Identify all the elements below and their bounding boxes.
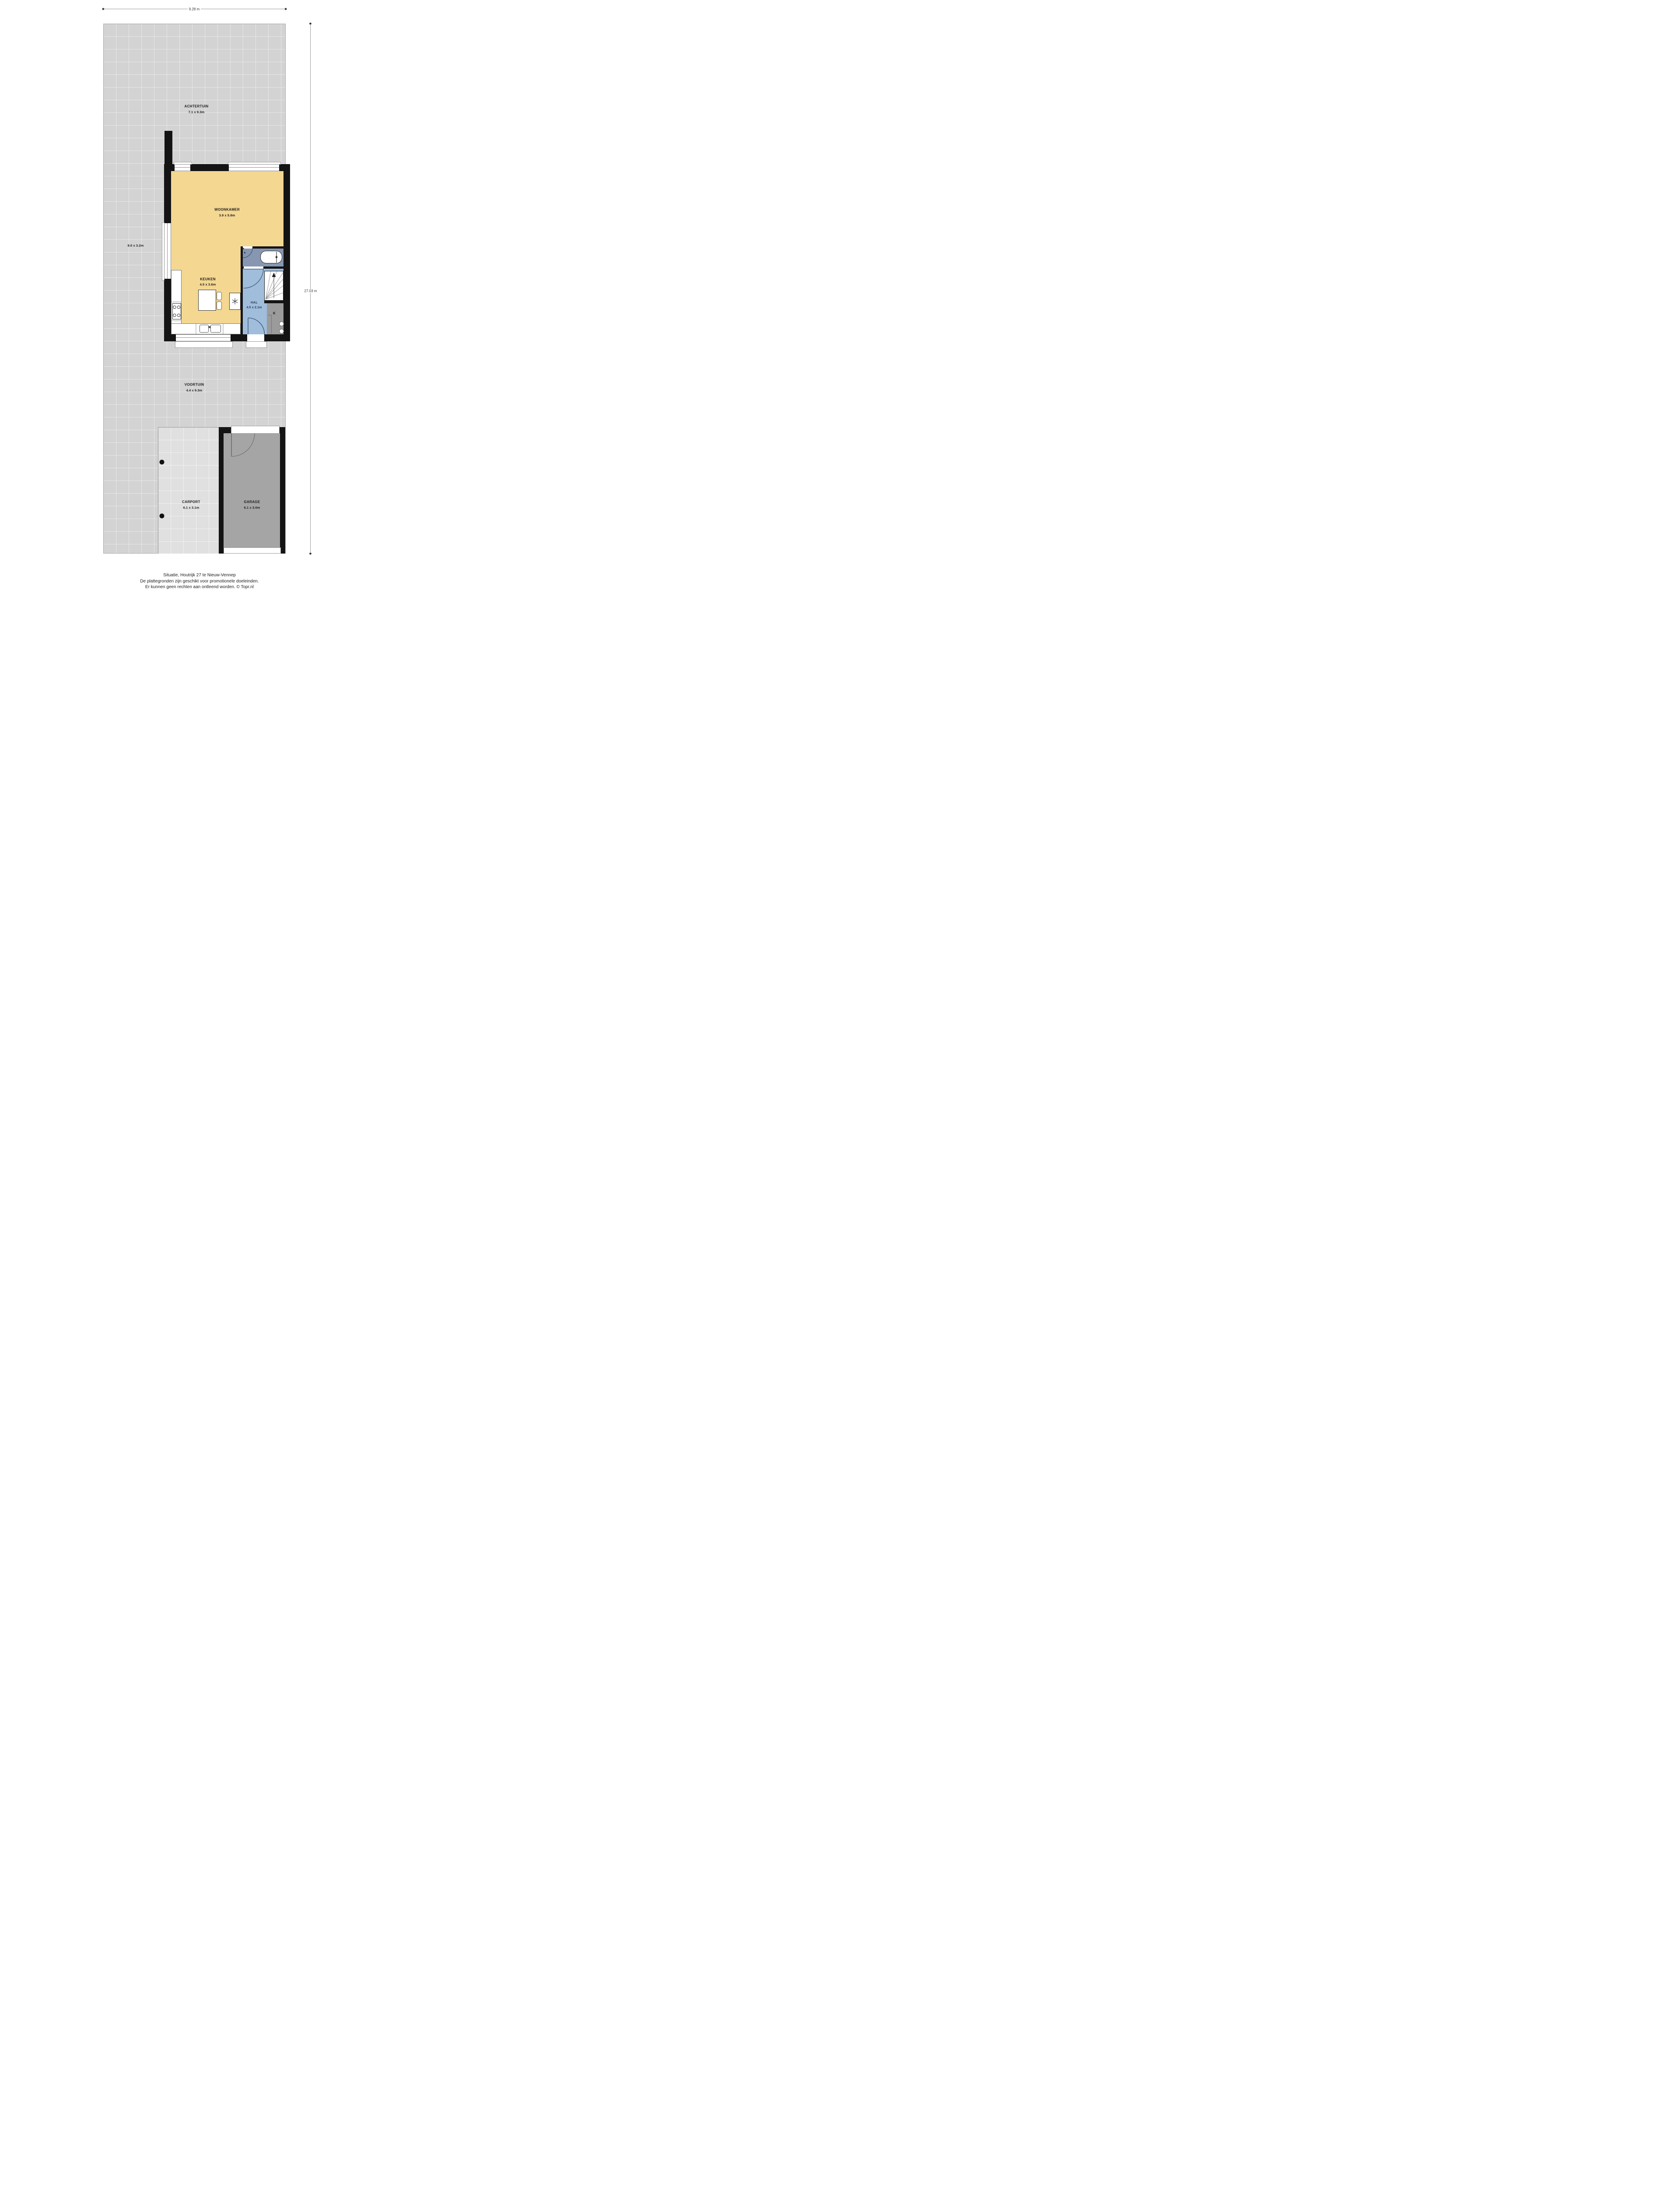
dining-chair [217,302,222,310]
label-carport: CARPORT [182,500,200,504]
label-voortuin-size: 4.4 x 9.3m [186,389,203,393]
window-top-right [229,164,279,171]
garage-wall-right [280,427,285,554]
footer-title: Situatie, Houtrijk 27 te Nieuw-Vennep [0,572,399,579]
label-garage: GARAGE [244,500,260,504]
floorplan-page: 9.28 m 27.03 m [0,0,420,594]
appliance-unit [229,293,241,310]
dimension-line-right [310,24,311,554]
label-woonkamer-size: 3.9 x 5.8m [219,213,235,217]
garage-floor [224,433,280,547]
label-keuken-size: 4.5 x 3.6m [200,283,216,287]
stairs [264,271,283,301]
label-woonkamer: WOONKAMER [214,208,240,212]
footer-disclaimer-2: Er kunnen geen rechten aan ontleend word… [0,584,399,590]
label-hal: HAL [251,300,258,304]
garage-wall-left [219,427,224,554]
wall-right [283,164,290,341]
cooktop [172,303,181,319]
label-keuken: KEUKEN [200,277,216,281]
window-side-left [164,223,171,279]
bathtub [260,251,282,263]
dining-chair [217,292,222,300]
garage-entry-door-step [231,426,280,434]
dimension-label-width: 9.28 m [188,7,201,11]
carport-area [158,427,219,554]
sink-basin [210,325,221,333]
label-carport-size: 6.1 x 3.1m [183,506,199,510]
kitchen-island [198,290,216,311]
window-sill-kitchen [175,341,233,348]
front-door-opening [247,334,264,341]
garage-door [224,547,281,554]
label-garage-size: 6.1 x 3.0m [244,506,260,510]
label-achtertuin-size: 7.1 x 9.3m [189,110,205,114]
label-side-garden-size: 9.0 x 3.2m [128,244,144,248]
label-kast: K [273,311,276,315]
footer-disclaimer-1: De plattegronden zijn geschikt voor prom… [0,579,399,585]
closet-floor [267,303,283,335]
garden-wall-stub [164,131,172,165]
bathroom-door-opening [243,246,252,249]
footer-text: Situatie, Houtrijk 27 te Nieuw-Vennep De… [0,572,399,590]
label-hal-size: 4.5 x 2.1m [246,305,262,309]
dimension-label-height: 27.03 m [303,289,318,293]
window-top-left [175,164,190,171]
sink-basin [199,325,209,333]
label-voortuin: VOORTUIN [185,383,204,387]
window-kitchen [176,334,231,341]
hall-door-opening [244,266,263,269]
label-achtertuin: ACHTERTUIN [185,105,209,109]
front-door-step [246,341,267,348]
